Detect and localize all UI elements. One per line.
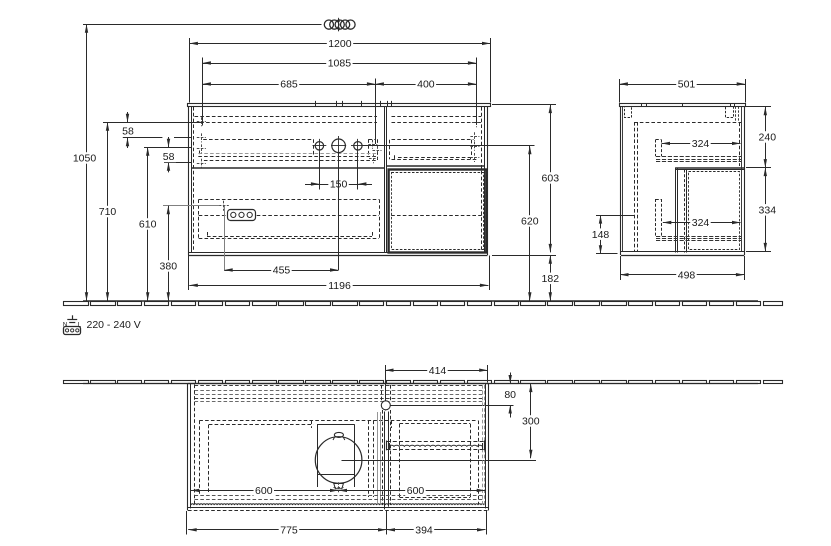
svg-text:182: 182 [542,273,560,285]
svg-text:455: 455 [273,265,291,277]
svg-text:610: 610 [139,219,157,231]
svg-text:498: 498 [678,269,696,281]
svg-text:240: 240 [759,132,777,144]
svg-text:58: 58 [163,151,175,163]
svg-text:324: 324 [692,217,710,229]
svg-text:501: 501 [678,79,696,91]
svg-text:1085: 1085 [328,58,352,70]
svg-text:324: 324 [692,138,710,150]
svg-text:685: 685 [280,79,298,91]
svg-text:1050: 1050 [73,153,97,165]
svg-text:1196: 1196 [328,280,351,292]
svg-text:148: 148 [592,229,610,241]
svg-text:603: 603 [542,173,560,185]
svg-text:394: 394 [415,525,433,537]
svg-text:380: 380 [160,261,178,273]
svg-text:710: 710 [99,206,117,218]
svg-text:600: 600 [255,485,273,497]
svg-text:334: 334 [759,205,777,217]
svg-text:400: 400 [417,79,435,91]
svg-text:600: 600 [407,485,425,497]
svg-text:220 - 240 V: 220 - 240 V [87,319,141,331]
svg-text:775: 775 [280,525,298,537]
svg-text:1200: 1200 [328,38,352,50]
svg-text:300: 300 [522,416,540,428]
svg-text:58: 58 [122,126,134,138]
svg-text:414: 414 [429,365,447,377]
svg-text:620: 620 [521,216,539,228]
svg-text:80: 80 [504,389,516,401]
